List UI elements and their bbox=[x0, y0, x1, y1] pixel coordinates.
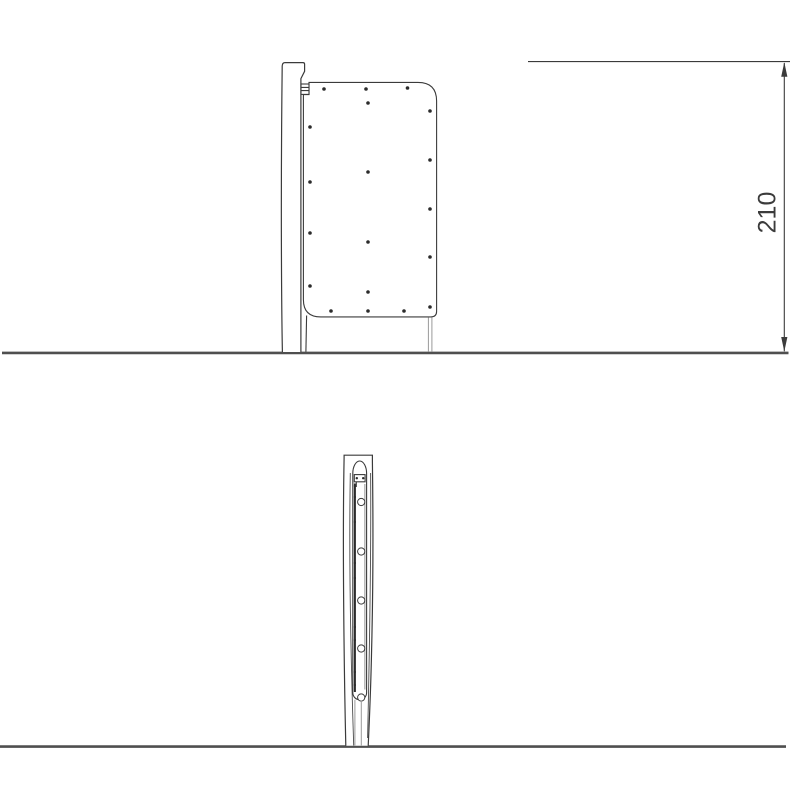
screw-dot bbox=[308, 231, 312, 235]
screw-dot bbox=[366, 240, 370, 244]
screw-dot bbox=[428, 158, 432, 162]
screw-dot bbox=[428, 109, 432, 113]
panel-mount-bracket-side bbox=[301, 84, 309, 94]
bracket-body bbox=[301, 84, 309, 94]
screw-tip-dot bbox=[354, 684, 356, 686]
dimension-annotation: 210 bbox=[528, 62, 790, 352]
dimension-arrow-up-icon bbox=[781, 62, 787, 77]
screw-dot bbox=[366, 170, 370, 174]
screw-dot bbox=[402, 309, 406, 313]
screw-tip-dot bbox=[354, 521, 356, 523]
screw-tip-dot bbox=[354, 485, 356, 487]
side-view bbox=[2, 63, 789, 353]
screw-dot bbox=[428, 305, 432, 309]
bolt-head bbox=[358, 694, 365, 701]
post-side-outline bbox=[281, 63, 304, 352]
front-view bbox=[0, 455, 786, 746]
screw-dot bbox=[308, 125, 312, 129]
bolt-head bbox=[358, 597, 365, 604]
screw-tip-dot bbox=[354, 562, 356, 564]
screw-dot bbox=[366, 309, 370, 313]
technical-drawing-canvas: 210 bbox=[0, 0, 800, 800]
screw-dot bbox=[366, 290, 370, 294]
dimension-arrow-down-icon bbox=[781, 337, 787, 352]
panel-support-leg-side bbox=[428, 318, 432, 352]
screw-dot bbox=[428, 255, 432, 259]
screw-tip-dot bbox=[354, 626, 356, 628]
bracket-dot bbox=[362, 477, 364, 479]
screw-dot bbox=[308, 284, 312, 288]
bolt-head bbox=[358, 645, 365, 652]
drawing-svg: 210 bbox=[0, 0, 800, 800]
screw-dot bbox=[364, 87, 368, 91]
panel-side-outline bbox=[303, 82, 436, 317]
post-side-secondary-line bbox=[306, 316, 307, 352]
screw-dot bbox=[366, 101, 370, 105]
screw-dot bbox=[322, 87, 326, 91]
screw-tip-dot bbox=[354, 639, 356, 641]
screw-tip-dot bbox=[354, 577, 356, 579]
dimension-label: 210 bbox=[754, 192, 782, 234]
screw-dot bbox=[428, 207, 432, 211]
screw-dot bbox=[308, 180, 312, 184]
screw-dot bbox=[329, 309, 333, 313]
screw-dot bbox=[406, 86, 410, 90]
screw-tip-dot bbox=[354, 671, 356, 673]
bolt-head bbox=[358, 548, 365, 555]
bracket-dot bbox=[356, 477, 358, 479]
bolt-head bbox=[358, 498, 365, 505]
screw-tip-dot bbox=[354, 496, 356, 498]
